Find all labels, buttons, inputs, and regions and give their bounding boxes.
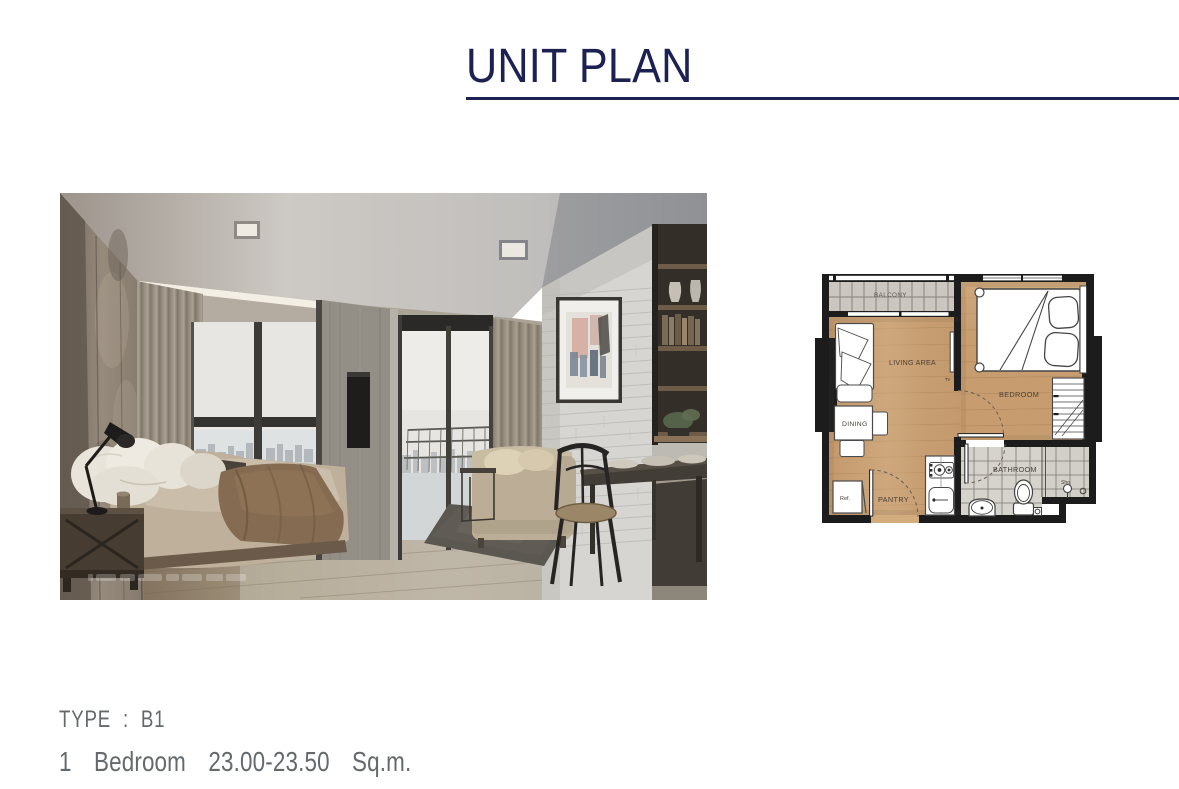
svg-text:DINING: DINING	[842, 421, 868, 428]
svg-text:Sho.: Sho.	[1061, 480, 1071, 486]
svg-text:BALCONY: BALCONY	[874, 292, 907, 299]
svg-text:PANTRY: PANTRY	[878, 495, 909, 504]
svg-text:Ref.: Ref.	[840, 496, 851, 502]
svg-text:TV: TV	[945, 377, 951, 382]
svg-text:BEDROOM: BEDROOM	[999, 390, 1039, 399]
svg-text:LIVING AREA: LIVING AREA	[889, 359, 936, 367]
svg-text:BATHROOM: BATHROOM	[993, 465, 1037, 474]
